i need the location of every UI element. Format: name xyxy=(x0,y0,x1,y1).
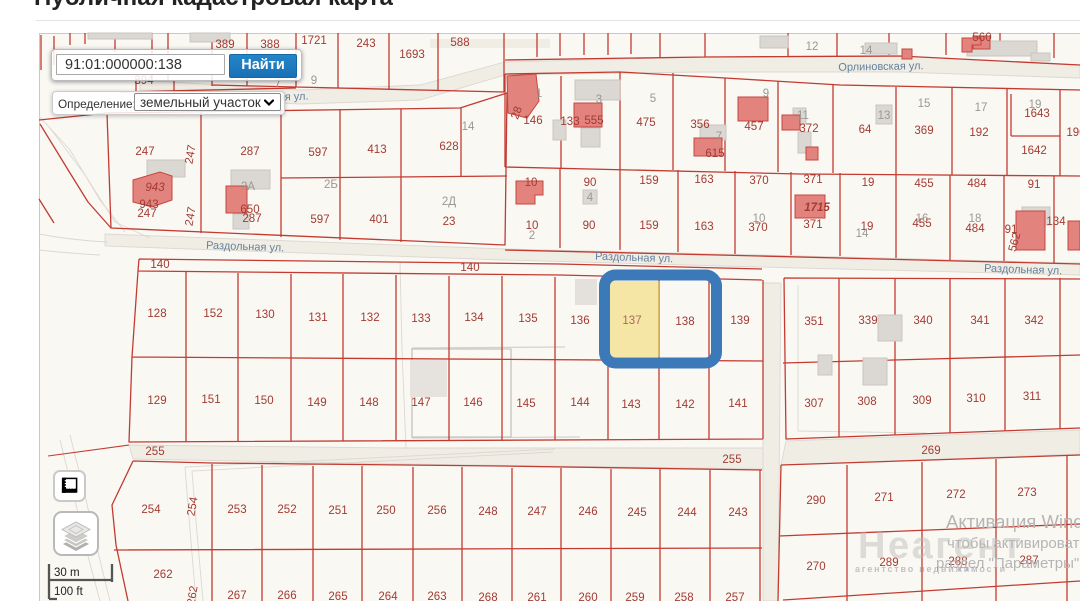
svg-text:287: 287 xyxy=(240,146,259,158)
svg-text:14: 14 xyxy=(462,121,475,133)
svg-text:246: 246 xyxy=(578,506,597,518)
svg-text:144: 144 xyxy=(570,397,590,409)
svg-text:371: 371 xyxy=(803,219,822,231)
svg-text:255: 255 xyxy=(145,446,164,458)
svg-text:475: 475 xyxy=(636,117,655,129)
svg-text:91: 91 xyxy=(1028,179,1041,191)
svg-text:252: 252 xyxy=(277,504,296,516)
svg-text:615: 615 xyxy=(705,148,724,160)
svg-text:140: 140 xyxy=(460,262,479,274)
svg-text:341: 341 xyxy=(970,315,989,327)
svg-text:19: 19 xyxy=(1029,99,1042,111)
svg-text:371: 371 xyxy=(803,174,822,186)
svg-text:270: 270 xyxy=(806,561,825,573)
svg-text:агентство недвижимости: агентство недвижимости xyxy=(855,564,1007,574)
svg-text:138: 138 xyxy=(675,316,694,328)
svg-text:555: 555 xyxy=(584,115,603,127)
svg-text:9: 9 xyxy=(763,88,769,100)
svg-text:245: 245 xyxy=(627,507,646,519)
svg-text:10: 10 xyxy=(753,213,766,225)
svg-text:251: 251 xyxy=(328,505,347,517)
svg-text:159: 159 xyxy=(639,175,658,187)
svg-text:413: 413 xyxy=(367,144,386,156)
svg-text:560: 560 xyxy=(972,32,991,44)
svg-text:588: 588 xyxy=(450,37,469,49)
svg-text:340: 340 xyxy=(913,315,932,327)
svg-text:267: 267 xyxy=(227,590,246,601)
svg-text:136: 136 xyxy=(570,315,589,327)
svg-text:1693: 1693 xyxy=(399,49,425,61)
svg-text:147: 147 xyxy=(411,397,430,409)
svg-text:628: 628 xyxy=(439,141,458,153)
svg-text:11: 11 xyxy=(797,110,809,122)
svg-text:3: 3 xyxy=(596,94,602,106)
svg-text:12: 12 xyxy=(806,41,819,53)
svg-text:17: 17 xyxy=(975,102,988,114)
svg-text:260: 260 xyxy=(578,592,597,601)
svg-text:148: 148 xyxy=(359,397,378,409)
svg-text:149: 149 xyxy=(307,397,326,409)
svg-text:1721: 1721 xyxy=(301,35,327,47)
svg-text:272: 272 xyxy=(946,489,965,501)
svg-text:309: 309 xyxy=(912,395,931,407)
svg-text:261: 261 xyxy=(527,592,546,601)
svg-text:141: 141 xyxy=(728,398,747,410)
svg-text:262: 262 xyxy=(153,569,172,581)
svg-text:2А: 2А xyxy=(241,181,255,193)
svg-text:15: 15 xyxy=(918,98,931,110)
svg-text:356: 356 xyxy=(690,119,709,131)
svg-text:244: 244 xyxy=(677,507,697,519)
svg-text:150: 150 xyxy=(254,395,273,407)
svg-text:1: 1 xyxy=(536,88,542,100)
svg-text:130: 130 xyxy=(255,309,274,321)
svg-text:455: 455 xyxy=(914,178,933,190)
svg-text:266: 266 xyxy=(277,590,296,601)
svg-text:142: 142 xyxy=(675,399,694,411)
svg-text:262: 262 xyxy=(185,585,200,601)
svg-text:14: 14 xyxy=(856,228,869,240)
svg-text:257: 257 xyxy=(725,592,744,601)
svg-text:369: 369 xyxy=(914,125,933,137)
svg-text:1715: 1715 xyxy=(804,202,830,214)
svg-text:290: 290 xyxy=(806,495,825,507)
svg-text:308: 308 xyxy=(857,396,876,408)
svg-text:10: 10 xyxy=(525,177,538,189)
svg-text:143: 143 xyxy=(621,399,640,411)
svg-text:342: 342 xyxy=(1024,315,1043,327)
svg-text:146: 146 xyxy=(523,115,542,127)
svg-text:2: 2 xyxy=(529,230,535,242)
svg-text:484: 484 xyxy=(967,178,987,190)
svg-text:4: 4 xyxy=(587,192,594,204)
svg-text:243: 243 xyxy=(728,507,747,519)
svg-text:269: 269 xyxy=(921,445,940,457)
svg-text:131: 131 xyxy=(308,312,327,324)
svg-text:192: 192 xyxy=(969,127,988,139)
svg-text:64: 64 xyxy=(859,124,872,136)
svg-text:16: 16 xyxy=(916,213,929,225)
svg-text:597: 597 xyxy=(308,147,327,159)
svg-text:9: 9 xyxy=(311,75,317,87)
svg-text:273: 273 xyxy=(1017,487,1036,499)
svg-text:259: 259 xyxy=(625,592,644,601)
svg-text:Неагент: Неагент xyxy=(858,525,1024,567)
svg-text:140: 140 xyxy=(150,259,169,271)
svg-text:1642: 1642 xyxy=(1021,145,1047,157)
svg-text:311: 311 xyxy=(1023,391,1041,403)
svg-text:145: 145 xyxy=(516,398,535,410)
svg-text:146: 146 xyxy=(463,397,482,409)
svg-text:13: 13 xyxy=(878,110,891,122)
svg-text:372: 372 xyxy=(799,123,818,135)
svg-text:90: 90 xyxy=(584,177,597,189)
svg-text:247: 247 xyxy=(527,506,546,518)
svg-text:351: 351 xyxy=(804,316,823,328)
svg-text:5: 5 xyxy=(650,93,656,105)
svg-text:597: 597 xyxy=(310,214,329,226)
svg-text:247: 247 xyxy=(135,146,154,158)
svg-text:137: 137 xyxy=(622,315,641,327)
svg-text:129: 129 xyxy=(147,395,166,407)
svg-text:264: 264 xyxy=(378,591,398,601)
svg-text:151: 151 xyxy=(201,394,220,406)
svg-text:401: 401 xyxy=(369,214,388,226)
svg-text:7: 7 xyxy=(716,131,722,143)
svg-text:100 ft: 100 ft xyxy=(54,586,84,598)
svg-text:255: 255 xyxy=(722,454,741,466)
svg-text:23: 23 xyxy=(443,216,456,228)
svg-text:263: 263 xyxy=(427,591,446,601)
svg-text:152: 152 xyxy=(203,308,222,320)
svg-text:310: 310 xyxy=(966,393,985,405)
svg-text:307: 307 xyxy=(804,398,823,410)
svg-text:457: 457 xyxy=(744,121,763,133)
svg-text:163: 163 xyxy=(694,221,713,233)
svg-text:339: 339 xyxy=(858,315,877,327)
svg-text:90: 90 xyxy=(583,220,596,232)
svg-text:159: 159 xyxy=(639,220,658,232)
svg-text:943: 943 xyxy=(139,199,158,211)
svg-text:271: 271 xyxy=(874,492,893,504)
svg-text:19: 19 xyxy=(862,177,875,189)
svg-text:287: 287 xyxy=(242,213,261,225)
svg-text:18: 18 xyxy=(969,213,982,225)
svg-text:133: 133 xyxy=(560,116,579,128)
svg-text:254: 254 xyxy=(141,504,161,516)
svg-text:190: 190 xyxy=(1066,127,1080,139)
svg-text:14: 14 xyxy=(860,45,873,57)
svg-text:133: 133 xyxy=(411,313,430,325)
svg-text:2Б: 2Б xyxy=(324,179,338,191)
svg-text:250: 250 xyxy=(376,505,395,517)
svg-text:265: 265 xyxy=(328,591,347,601)
svg-text:163: 163 xyxy=(694,174,713,186)
svg-text:253: 253 xyxy=(227,504,246,516)
svg-text:128: 128 xyxy=(147,308,166,320)
svg-text:243: 243 xyxy=(356,38,375,50)
svg-text:258: 258 xyxy=(674,592,693,601)
svg-text:139: 139 xyxy=(730,315,749,327)
svg-text:943: 943 xyxy=(145,182,165,194)
svg-text:30 m: 30 m xyxy=(54,567,80,579)
svg-text:135: 135 xyxy=(518,313,537,325)
svg-text:134: 134 xyxy=(1046,216,1066,228)
svg-text:2Д: 2Д xyxy=(442,196,456,208)
svg-text:256: 256 xyxy=(427,505,446,517)
svg-text:248: 248 xyxy=(478,506,497,518)
svg-text:370: 370 xyxy=(749,175,768,187)
svg-text:268: 268 xyxy=(478,592,497,601)
svg-text:134: 134 xyxy=(464,312,484,324)
svg-text:132: 132 xyxy=(360,312,379,324)
svg-text:Орлиновская ул.: Орлиновская ул. xyxy=(838,60,923,73)
